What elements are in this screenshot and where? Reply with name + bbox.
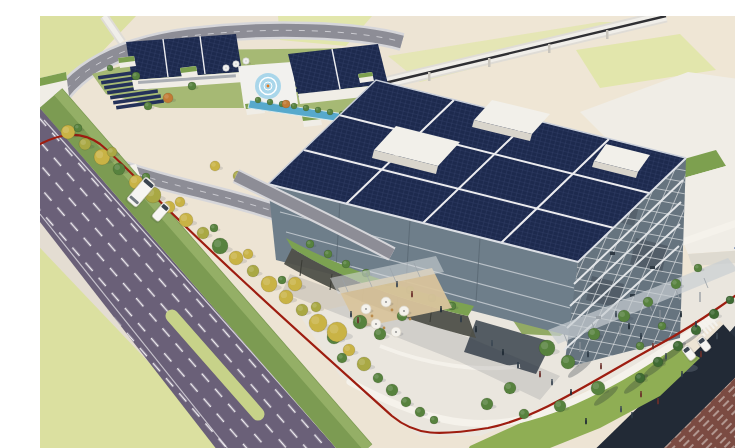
person-marker bbox=[640, 333, 642, 339]
person-marker bbox=[695, 321, 697, 327]
person-marker bbox=[517, 362, 519, 368]
person-marker bbox=[350, 311, 352, 317]
scene-svg bbox=[40, 16, 735, 448]
person-marker bbox=[680, 311, 682, 317]
person-marker bbox=[587, 351, 589, 357]
person-marker bbox=[475, 326, 477, 332]
person-marker bbox=[440, 306, 442, 312]
helipad-center-dot bbox=[267, 85, 270, 88]
architectural-rendering bbox=[40, 16, 735, 448]
person-marker bbox=[628, 323, 630, 329]
campus-building-west bbox=[126, 34, 244, 90]
person-marker bbox=[665, 353, 667, 359]
person-marker bbox=[539, 371, 541, 377]
person-marker bbox=[681, 371, 683, 377]
person-marker bbox=[652, 343, 654, 349]
person-marker bbox=[640, 391, 642, 397]
person-marker bbox=[600, 363, 602, 369]
person-marker bbox=[657, 398, 659, 404]
person-marker bbox=[491, 340, 493, 346]
person-marker bbox=[570, 389, 572, 395]
person-marker bbox=[620, 406, 622, 412]
person-marker bbox=[411, 291, 413, 297]
person-marker bbox=[357, 317, 359, 323]
person-marker bbox=[700, 351, 702, 357]
person-marker bbox=[396, 281, 398, 287]
person-marker bbox=[502, 349, 504, 355]
person-marker bbox=[460, 316, 462, 322]
person-marker bbox=[631, 412, 633, 418]
person-marker bbox=[716, 333, 718, 339]
person-marker bbox=[585, 418, 587, 424]
person-marker bbox=[551, 379, 553, 385]
person-marker bbox=[615, 311, 617, 317]
